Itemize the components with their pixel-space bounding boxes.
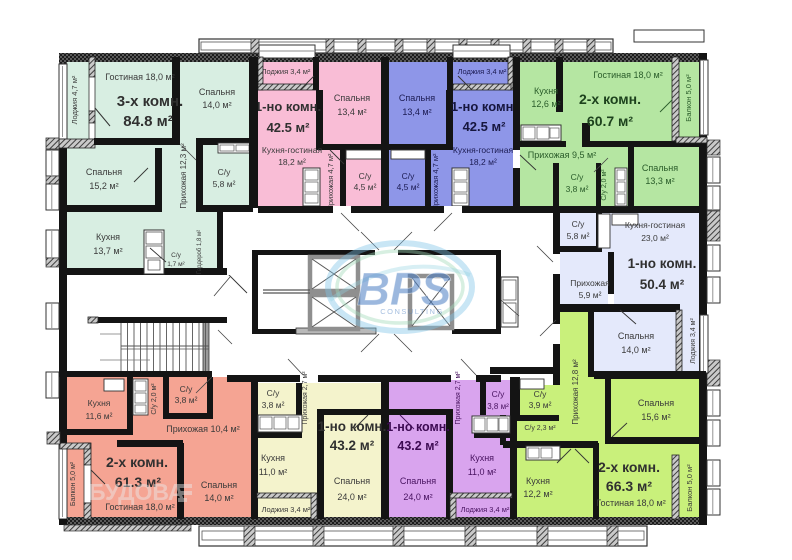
svg-text:Лоджия 3,4 м²: Лоджия 3,4 м² [262,67,311,76]
svg-text:Кухня: Кухня [526,476,550,486]
svg-text:С/у 2,0 м²: С/у 2,0 м² [601,169,608,201]
svg-text:Кухня-гостиная: Кухня-гостиная [262,145,323,155]
svg-text:1-но комн.: 1-но комн. [386,420,450,434]
svg-text:4,5 м²: 4,5 м² [354,182,377,192]
svg-text:3,9 м²: 3,9 м² [529,400,552,410]
svg-text:2-х комн.: 2-х комн. [598,459,660,475]
svg-text:Прихожая 4,7 м²: Прихожая 4,7 м² [326,153,335,211]
svg-text:Кухня: Кухня [534,86,558,96]
svg-text:42.5 м²: 42.5 м² [267,120,311,135]
svg-text:2-х комн.: 2-х комн. [106,454,168,470]
svg-text:С/у: С/у [171,252,182,259]
svg-text:Спальня: Спальня [334,476,370,486]
svg-text:5,9 м²: 5,9 м² [579,290,602,300]
svg-text:42.5 м²: 42.5 м² [463,119,507,134]
svg-text:13,4 м²: 13,4 м² [337,107,366,117]
svg-text:Балкон 5,0 м²: Балкон 5,0 м² [70,461,77,506]
svg-text:Лоджия 3,4 м²: Лоджия 3,4 м² [458,67,507,76]
svg-text:Лоджия 3,4 м²: Лоджия 3,4 м² [262,505,311,514]
svg-text:15,2 м²: 15,2 м² [89,181,118,191]
svg-text:14,0 м²: 14,0 м² [621,345,650,355]
svg-text:Кухня-гостиная: Кухня-гостиная [625,220,686,230]
svg-text:Кухня: Кухня [470,453,494,463]
svg-text:Лоджия 3,4 м²: Лоджия 3,4 м² [690,318,697,364]
svg-text:CONSULTING: CONSULTING [380,307,444,316]
svg-text:Прихожая 10,4 м²: Прихожая 10,4 м² [166,424,239,434]
svg-text:3,8 м²: 3,8 м² [566,184,589,194]
svg-text:12,6 м²: 12,6 м² [531,99,560,109]
svg-text:3,8 м²: 3,8 м² [262,400,285,410]
svg-text:Балкон 5,0 м²: Балкон 5,0 м² [684,74,693,122]
svg-text:Лоджия 3,4 м²: Лоджия 3,4 м² [461,505,510,514]
svg-text:С/у: С/у [180,384,194,394]
svg-text:Спальня: Спальня [399,93,435,103]
svg-text:3,8 м²: 3,8 м² [175,395,198,405]
svg-text:Спальня: Спальня [201,480,237,490]
svg-text:С/у: С/у [534,389,548,399]
svg-text:43.2 м²: 43.2 м² [397,439,438,453]
svg-text:Кухня: Кухня [96,232,120,242]
svg-text:1-но комн.: 1-но комн. [628,256,697,271]
svg-text:84.8 м²: 84.8 м² [123,113,172,130]
svg-text:24,0 м²: 24,0 м² [403,492,432,502]
svg-text:66.3 м²: 66.3 м² [606,478,652,494]
svg-text:Спальня: Спальня [400,476,436,486]
svg-text:1,7 м²: 1,7 м² [167,261,185,268]
svg-text:С/у 2,0 м²: С/у 2,0 м² [151,383,158,415]
svg-text:Гостиная 18,0 м²: Гостиная 18,0 м² [596,498,665,508]
svg-text:15,6 м²: 15,6 м² [641,412,670,422]
svg-text:Спальня: Спальня [86,167,122,177]
svg-text:Кухня: Кухня [261,453,285,463]
svg-text:18,2 м²: 18,2 м² [469,157,497,167]
svg-text:50.4 м²: 50.4 м² [640,277,685,292]
svg-text:Прихожая 12,3 м²: Прихожая 12,3 м² [179,143,188,209]
svg-text:5,8 м²: 5,8 м² [213,179,236,189]
svg-text:11,0 м²: 11,0 м² [259,467,288,477]
svg-text:С/у: С/у [402,171,416,181]
svg-text:14,0 м²: 14,0 м² [202,100,231,110]
svg-text:С/у: С/у [571,172,585,182]
svg-text:С/у: С/у [492,389,506,399]
svg-text:60.7 м²: 60.7 м² [587,113,633,129]
svg-text:С/у: С/у [359,171,373,181]
svg-text:4,5 м²: 4,5 м² [397,182,420,192]
svg-text:1-но комн.: 1-но комн. [318,419,387,434]
svg-text:3,8 м²: 3,8 м² [487,402,509,411]
svg-text:Гардероб 1,8 м²: Гардероб 1,8 м² [197,230,203,274]
svg-text:Прихожая 2,7 м²: Прихожая 2,7 м² [302,371,309,425]
svg-text:Спальня: Спальня [638,398,674,408]
svg-text:Спальня: Спальня [618,331,654,341]
svg-text:С/у: С/у [218,167,232,177]
svg-text:11,6 м²: 11,6 м² [86,411,113,421]
svg-text:Кухня-гостиная: Кухня-гостиная [453,145,514,155]
svg-text:БУДОВА: БУДОВА [89,479,184,505]
svg-text:3-х комн.: 3-х комн. [117,93,183,110]
svg-text:Прихожая 4,7 м²: Прихожая 4,7 м² [431,153,440,211]
svg-text:С/у: С/у [572,219,586,229]
svg-text:18,2 м²: 18,2 м² [278,157,306,167]
svg-text:24,0 м²: 24,0 м² [337,492,366,502]
svg-text:11,0 м²: 11,0 м² [468,467,497,477]
svg-text:5,8 м²: 5,8 м² [567,231,590,241]
svg-text:23,0 м²: 23,0 м² [641,233,669,243]
svg-text:Гостиная 18,0 м²: Гостиная 18,0 м² [593,70,662,80]
svg-text:Спальня: Спальня [334,93,370,103]
svg-text:Прихожая 9,5 м²: Прихожая 9,5 м² [528,150,596,160]
svg-text:13,3 м²: 13,3 м² [645,176,674,186]
svg-text:2-х комн.: 2-х комн. [579,91,641,107]
svg-text:Прихожая 2,7 м²: Прихожая 2,7 м² [455,371,462,425]
svg-text:Балкон 5,0 м²: Балкон 5,0 м² [685,464,694,512]
svg-text:Прихожая 12,8 м²: Прихожая 12,8 м² [571,359,580,425]
svg-text:1-но комн.: 1-но комн. [451,99,517,114]
svg-text:Прихожая: Прихожая [570,278,610,288]
svg-text:Кухня: Кухня [88,398,111,408]
svg-text:12,2 м²: 12,2 м² [523,489,552,499]
svg-text:Гостиная 18,0 м²: Гостиная 18,0 м² [105,72,174,82]
svg-text:Спальня: Спальня [199,87,235,97]
svg-text:1-но комн.: 1-но комн. [255,99,321,114]
svg-text:14,0 м²: 14,0 м² [204,493,233,503]
svg-text:43.2 м²: 43.2 м² [330,438,375,453]
svg-text:С/у: С/у [267,388,281,398]
svg-text:13,4 м²: 13,4 м² [402,107,431,117]
svg-text:13,7 м²: 13,7 м² [93,246,122,256]
svg-text:С/у 2,3 м²: С/у 2,3 м² [524,425,556,432]
svg-text:Спальня: Спальня [642,163,678,173]
svg-text:Лоджия 4,7 м²: Лоджия 4,7 м² [70,75,79,124]
